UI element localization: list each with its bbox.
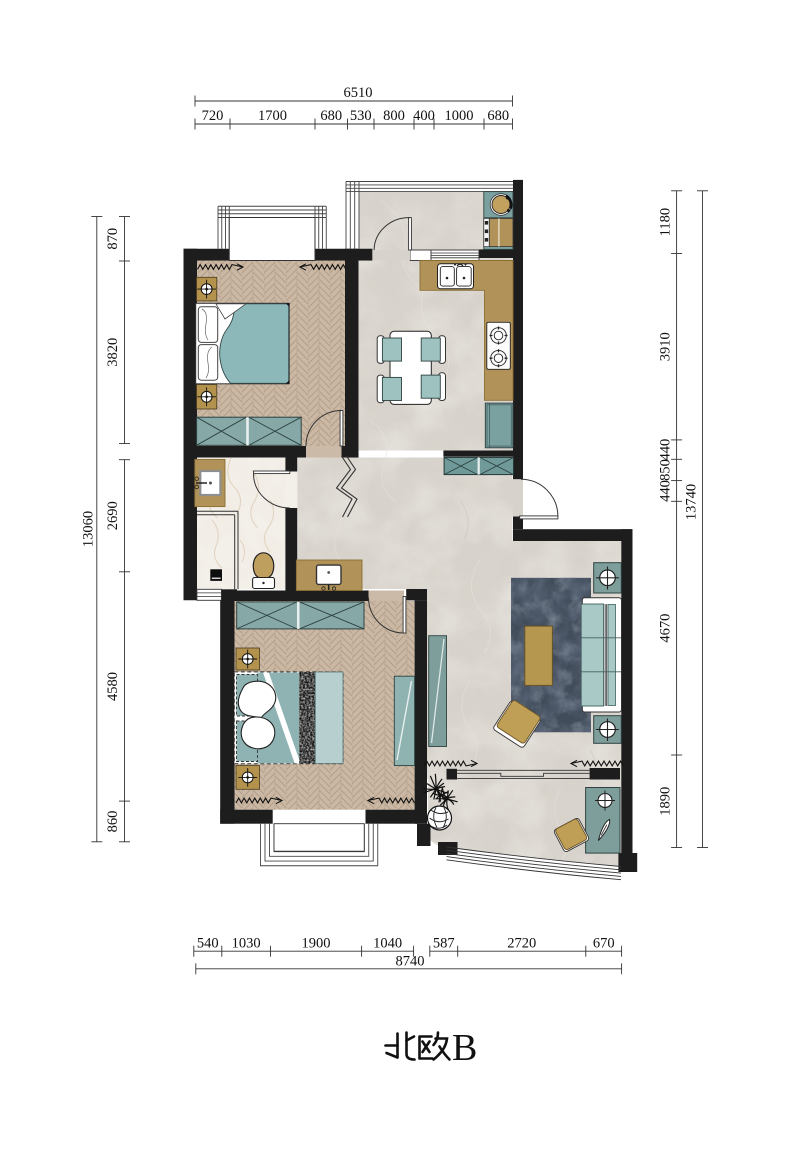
svg-text:4670: 4670	[658, 614, 674, 643]
svg-text:400: 400	[413, 108, 435, 124]
svg-text:2720: 2720	[507, 936, 536, 952]
svg-text:1040: 1040	[373, 936, 402, 952]
svg-text:860: 860	[105, 811, 121, 833]
svg-text:1890: 1890	[658, 787, 674, 816]
svg-text:3820: 3820	[105, 338, 121, 367]
svg-text:13740: 13740	[684, 484, 700, 520]
svg-text:850: 850	[658, 459, 674, 481]
svg-text:1700: 1700	[258, 108, 287, 124]
svg-text:1900: 1900	[302, 936, 331, 952]
svg-text:720: 720	[202, 108, 224, 124]
svg-text:670: 670	[593, 936, 615, 952]
svg-text:6510: 6510	[344, 85, 373, 101]
svg-text:587: 587	[433, 936, 455, 952]
svg-text:530: 530	[350, 108, 372, 124]
svg-text:3910: 3910	[658, 332, 674, 361]
svg-text:1000: 1000	[445, 108, 474, 124]
svg-text:800: 800	[383, 108, 405, 124]
svg-text:540: 540	[197, 936, 219, 952]
svg-text:B: B	[452, 1027, 477, 1069]
svg-text:1180: 1180	[658, 208, 674, 236]
svg-text:1030: 1030	[232, 936, 261, 952]
svg-text:680: 680	[320, 108, 342, 124]
svg-text:870: 870	[105, 228, 121, 250]
svg-text:4580: 4580	[105, 672, 121, 701]
svg-text:440: 440	[658, 439, 674, 461]
svg-text:8740: 8740	[396, 954, 425, 970]
svg-text:13060: 13060	[81, 511, 97, 547]
svg-text:680: 680	[487, 108, 509, 124]
svg-text:440: 440	[658, 480, 674, 502]
svg-text:2690: 2690	[105, 501, 121, 530]
